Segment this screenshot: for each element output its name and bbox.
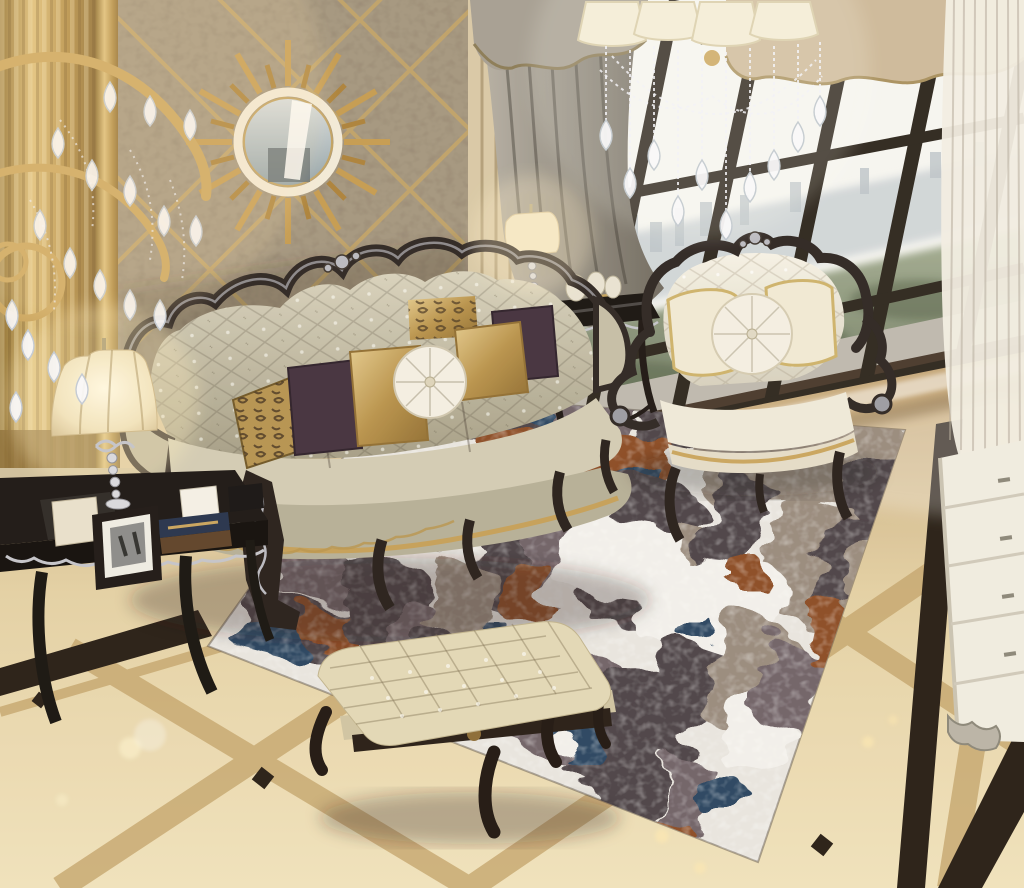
scene-canvas (0, 0, 1024, 888)
warm-overlay (0, 0, 1024, 888)
ambient-glows (0, 0, 1024, 888)
living-room-photo (0, 0, 1024, 888)
